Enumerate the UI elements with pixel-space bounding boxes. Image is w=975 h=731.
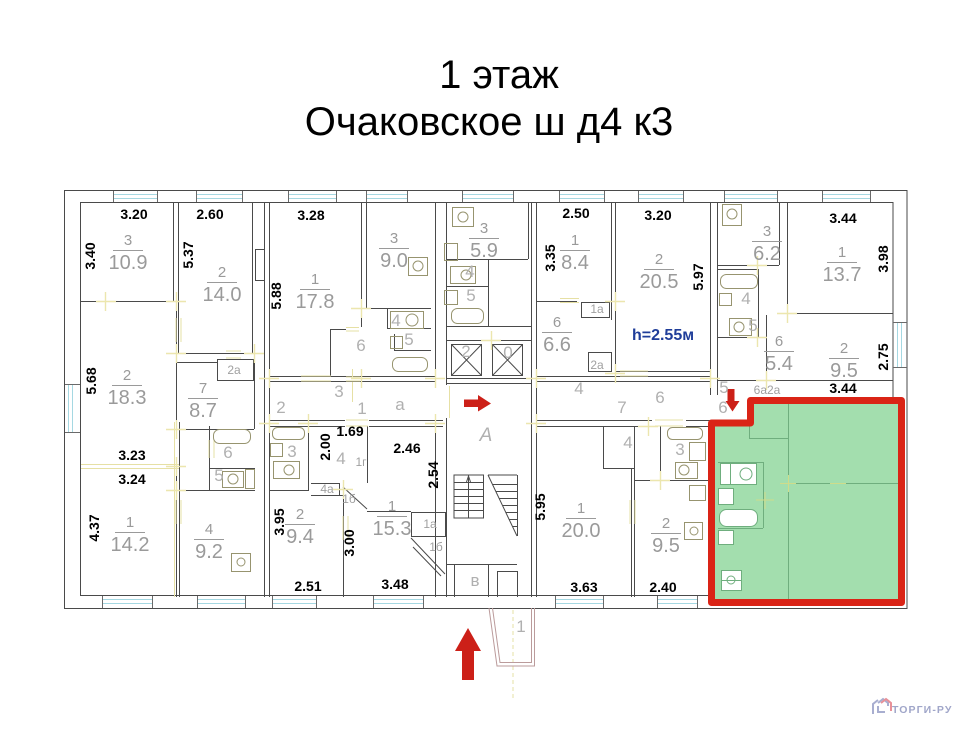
svg-text:3: 3	[287, 442, 296, 461]
svg-text:4: 4	[623, 433, 632, 452]
svg-text:20.5: 20.5	[640, 271, 679, 293]
svg-text:6: 6	[655, 388, 664, 407]
svg-text:5: 5	[719, 378, 728, 397]
svg-text:1: 1	[126, 514, 134, 531]
svg-text:5.37: 5.37	[180, 241, 196, 268]
svg-text:6: 6	[223, 443, 232, 462]
svg-text:1: 1	[516, 617, 525, 636]
svg-text:1: 1	[838, 244, 846, 261]
svg-text:h=2.55м: h=2.55м	[632, 327, 694, 344]
svg-text:6: 6	[553, 314, 561, 331]
svg-text:14.0: 14.0	[203, 284, 242, 306]
svg-text:4: 4	[465, 262, 474, 281]
svg-text:8.4: 8.4	[561, 252, 589, 274]
svg-text:7: 7	[617, 398, 626, 417]
svg-text:9.5: 9.5	[652, 535, 680, 557]
svg-text:2.46: 2.46	[393, 440, 420, 456]
svg-text:2.60: 2.60	[196, 206, 223, 222]
svg-text:3.24: 3.24	[118, 471, 145, 487]
svg-text:2.51: 2.51	[294, 578, 321, 594]
svg-text:4: 4	[741, 289, 750, 308]
svg-text:4: 4	[336, 449, 345, 468]
svg-text:5.4: 5.4	[765, 353, 793, 375]
svg-text:5: 5	[214, 466, 223, 485]
svg-text:2: 2	[123, 367, 131, 384]
svg-text:2: 2	[840, 340, 848, 357]
svg-text:4: 4	[574, 379, 583, 398]
svg-text:3.23: 3.23	[118, 447, 145, 463]
svg-text:в: в	[470, 571, 479, 590]
svg-text:1а: 1а	[590, 302, 604, 316]
svg-text:1: 1	[577, 500, 585, 517]
svg-text:3.44: 3.44	[829, 380, 856, 396]
svg-text:4: 4	[391, 311, 400, 330]
svg-text:4а: 4а	[320, 482, 334, 496]
svg-text:5.68: 5.68	[83, 367, 99, 394]
svg-text:1: 1	[571, 232, 579, 249]
svg-text:8.7: 8.7	[189, 400, 217, 422]
svg-text:9.0: 9.0	[380, 250, 408, 272]
svg-text:1: 1	[357, 399, 366, 418]
svg-text:18.3: 18.3	[108, 387, 147, 409]
svg-text:2: 2	[461, 342, 470, 361]
svg-text:ТОРГИ-РУ: ТОРГИ-РУ	[892, 704, 953, 716]
svg-text:1.69: 1.69	[336, 423, 363, 439]
svg-text:3.20: 3.20	[644, 207, 671, 223]
svg-text:2: 2	[218, 264, 226, 281]
svg-text:3.48: 3.48	[381, 576, 408, 592]
svg-text:5.88: 5.88	[268, 282, 284, 309]
svg-text:7: 7	[199, 380, 207, 397]
svg-text:5: 5	[748, 316, 757, 335]
svg-text:3.95: 3.95	[271, 508, 287, 535]
svg-text:2.40: 2.40	[649, 579, 676, 595]
svg-text:3.98: 3.98	[875, 245, 891, 272]
svg-text:1г: 1г	[355, 455, 367, 469]
svg-text:2: 2	[662, 515, 670, 532]
svg-text:1а: 1а	[423, 517, 437, 531]
svg-text:2.50: 2.50	[562, 205, 589, 221]
svg-text:6: 6	[718, 398, 727, 417]
svg-text:3: 3	[390, 230, 398, 247]
svg-text:3: 3	[334, 382, 343, 401]
svg-text:3: 3	[675, 440, 684, 459]
svg-text:2: 2	[296, 506, 304, 523]
svg-text:9.4: 9.4	[286, 526, 314, 548]
svg-text:Очаковское ш д4 к3: Очаковское ш д4 к3	[305, 100, 673, 144]
svg-text:3.35: 3.35	[542, 244, 558, 271]
svg-text:5.9: 5.9	[470, 240, 498, 262]
svg-text:6.2: 6.2	[753, 243, 781, 265]
svg-text:9.5: 9.5	[830, 360, 858, 382]
svg-text:5: 5	[466, 286, 475, 305]
svg-text:6: 6	[356, 336, 365, 355]
svg-text:17.8: 17.8	[296, 291, 335, 313]
svg-text:2: 2	[655, 251, 663, 268]
svg-text:1: 1	[388, 498, 396, 515]
svg-text:0: 0	[503, 343, 512, 362]
svg-text:2: 2	[276, 398, 285, 417]
svg-text:2.75: 2.75	[875, 343, 891, 370]
svg-text:5.97: 5.97	[690, 263, 706, 290]
svg-text:3.44: 3.44	[829, 210, 856, 226]
svg-text:2а: 2а	[227, 363, 241, 377]
svg-text:6.6: 6.6	[543, 334, 571, 356]
svg-text:3.40: 3.40	[82, 242, 98, 269]
svg-text:10.9: 10.9	[109, 252, 148, 274]
svg-text:5.95: 5.95	[532, 493, 548, 520]
svg-text:а: а	[395, 395, 405, 414]
svg-text:14.2: 14.2	[111, 534, 150, 556]
svg-text:3: 3	[480, 220, 488, 237]
svg-text:1б: 1б	[429, 540, 443, 554]
svg-text:4: 4	[205, 521, 213, 538]
svg-text:А: А	[479, 425, 493, 446]
svg-text:13.7: 13.7	[823, 264, 862, 286]
svg-text:20.0: 20.0	[562, 520, 601, 542]
svg-text:3.20: 3.20	[120, 206, 147, 222]
svg-text:9.2: 9.2	[195, 541, 223, 563]
svg-text:3.00: 3.00	[341, 529, 357, 556]
svg-text:3.63: 3.63	[570, 579, 597, 595]
svg-text:2.54: 2.54	[425, 461, 441, 488]
svg-text:3: 3	[763, 223, 771, 240]
svg-text:3: 3	[124, 232, 132, 249]
svg-text:1 этаж: 1 этаж	[439, 53, 559, 97]
svg-text:4.37: 4.37	[86, 514, 102, 541]
svg-text:6: 6	[775, 333, 783, 350]
svg-text:15.3: 15.3	[373, 518, 412, 540]
svg-text:3.28: 3.28	[297, 207, 324, 223]
svg-text:1б: 1б	[342, 492, 356, 506]
svg-text:5: 5	[404, 330, 413, 349]
svg-text:2а: 2а	[590, 358, 604, 372]
svg-text:2.00: 2.00	[317, 433, 333, 460]
svg-text:1: 1	[311, 271, 319, 288]
svg-text:6а2а: 6а2а	[754, 383, 781, 397]
